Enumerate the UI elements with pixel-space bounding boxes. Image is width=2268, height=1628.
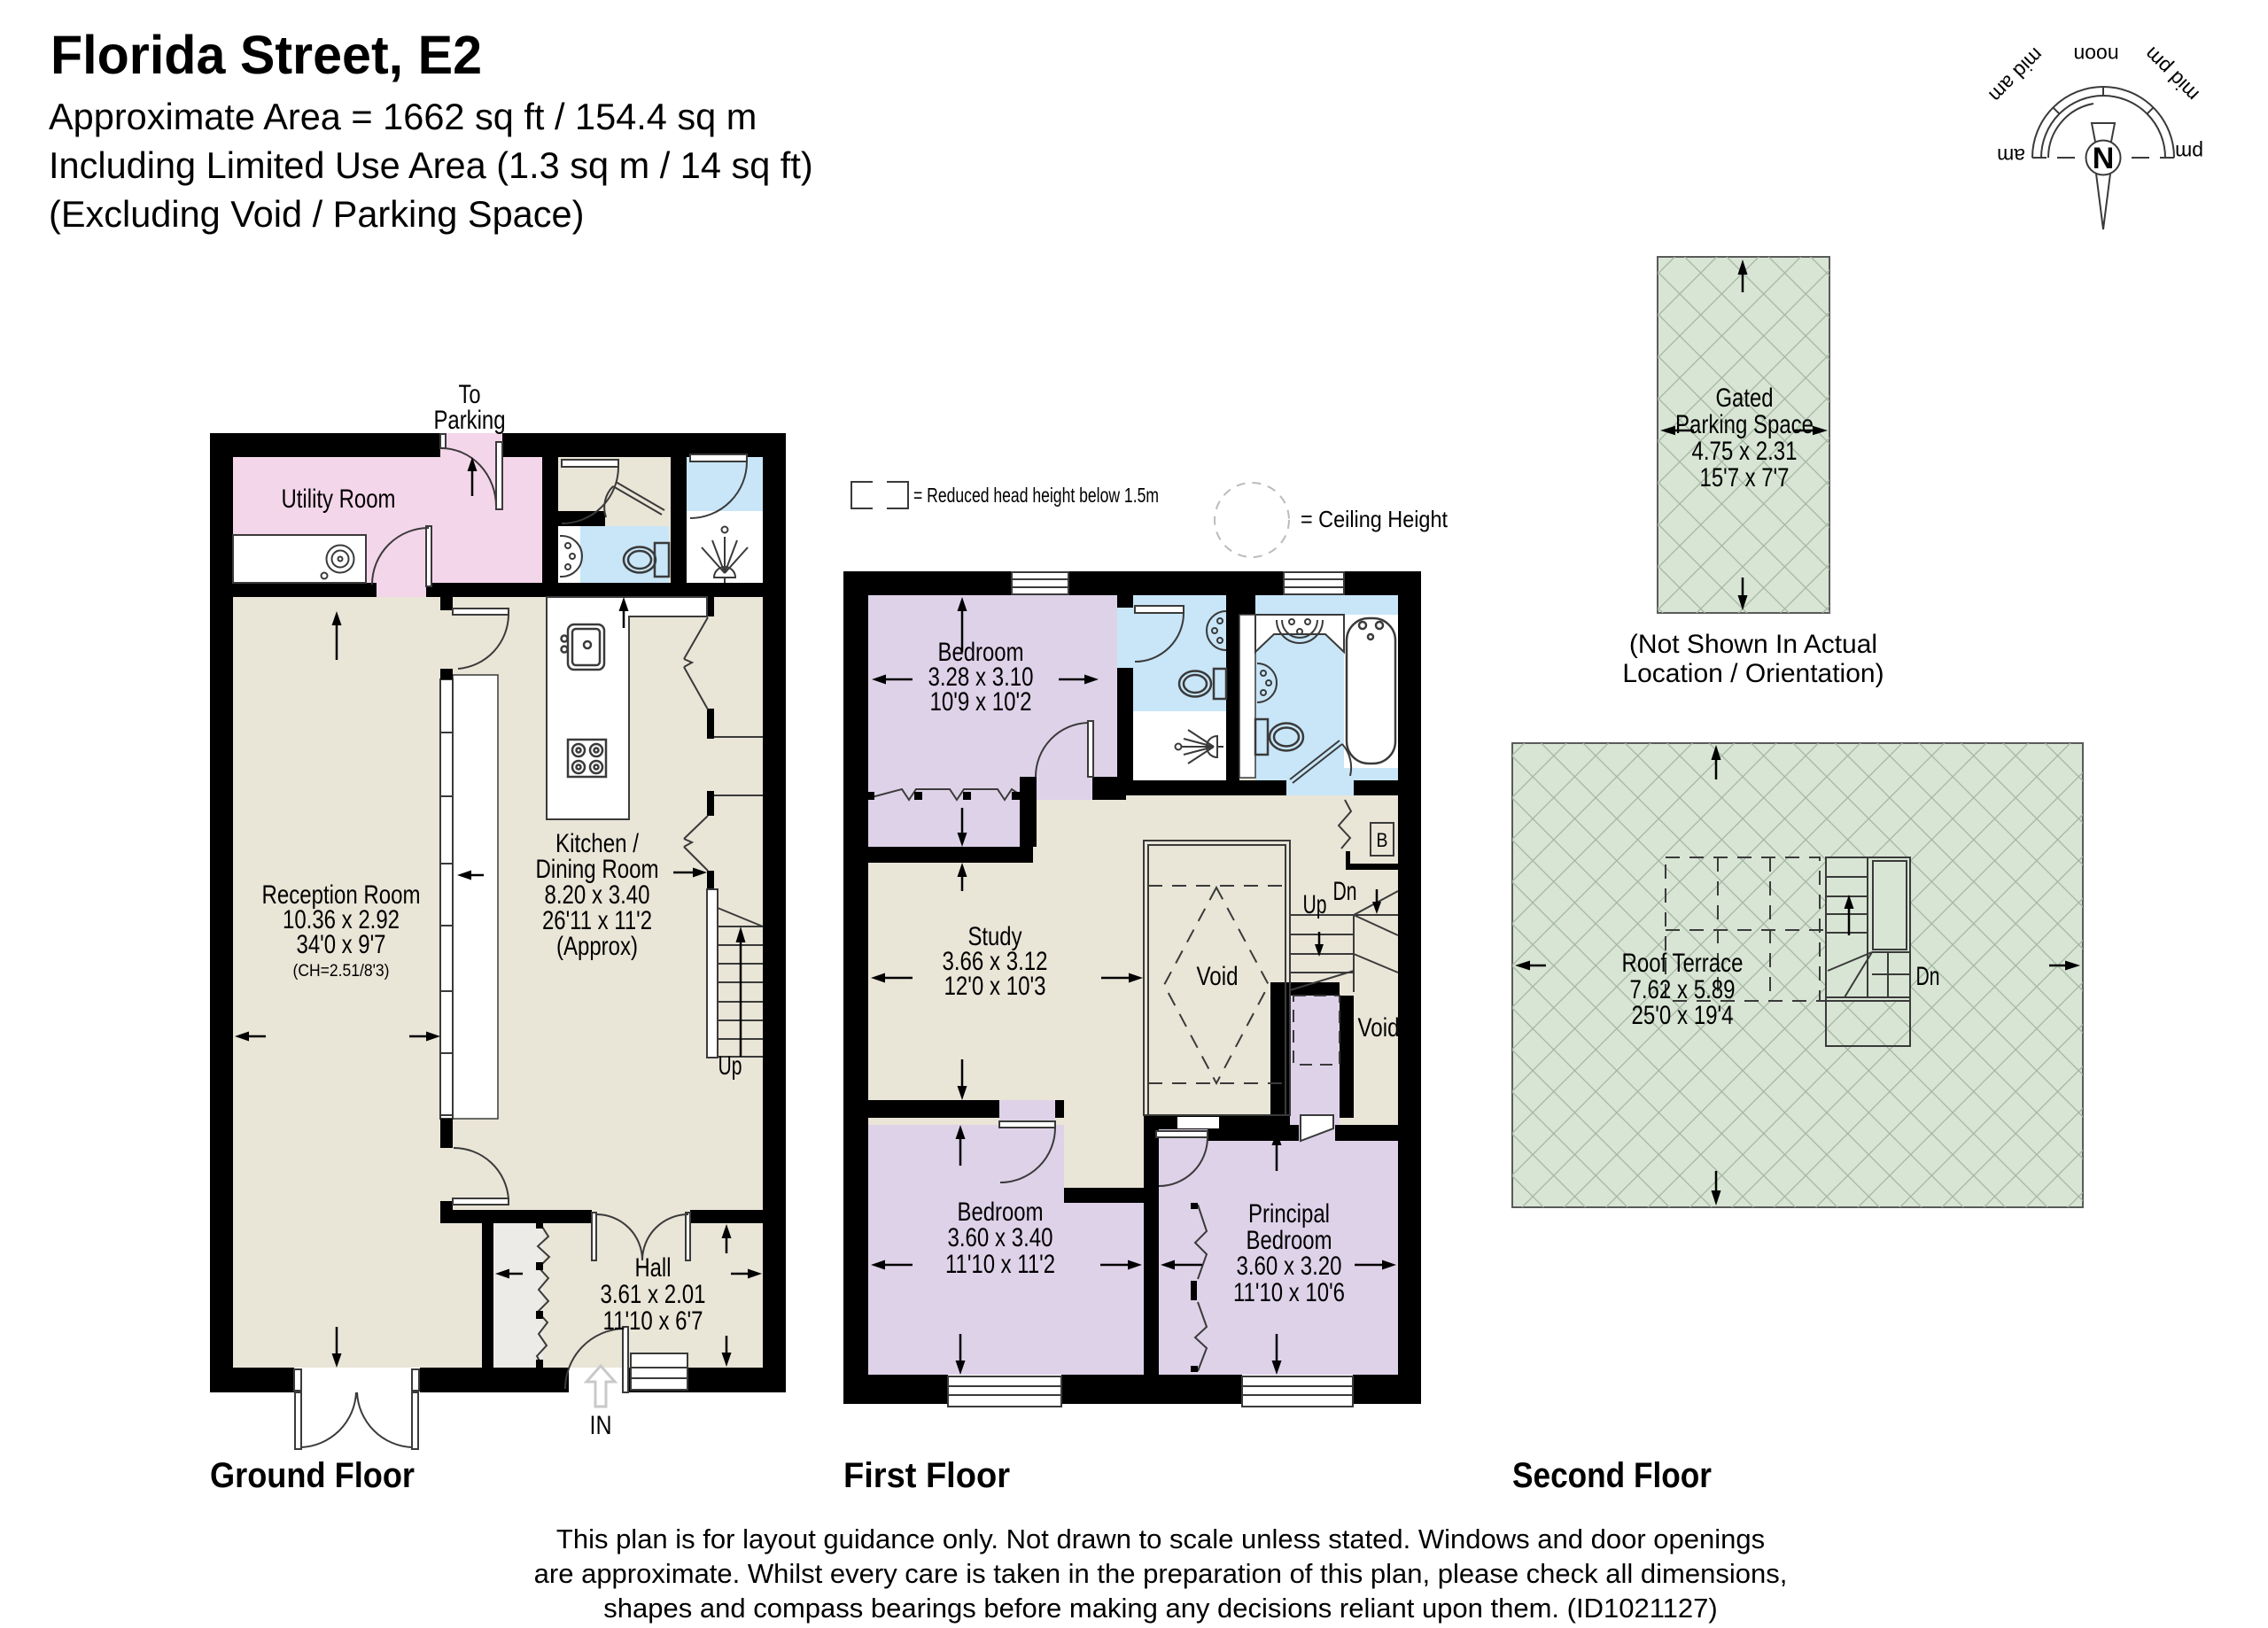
- svg-text:12'0 x 10'3: 12'0 x 10'3: [944, 972, 1046, 1001]
- svg-text:Void: Void: [1197, 962, 1239, 991]
- svg-text:10'9 x 10'2: 10'9 x 10'2: [930, 687, 1032, 717]
- svg-text:Principal: Principal: [1248, 1199, 1330, 1229]
- svg-text:Up: Up: [1303, 890, 1327, 919]
- svg-text:N: N: [2093, 142, 2115, 175]
- svg-text:= Ceiling Height: = Ceiling Height: [1301, 506, 1449, 532]
- svg-text:shapes and compass bearings be: shapes and compass bearings before makin…: [603, 1593, 1717, 1624]
- svg-text:25'0 x 19'4: 25'0 x 19'4: [1632, 1001, 1734, 1030]
- svg-text:3.61 x 2.01: 3.61 x 2.01: [601, 1280, 706, 1309]
- svg-text:3.60 x 3.20: 3.60 x 3.20: [1237, 1252, 1342, 1281]
- svg-text:Location / Orientation): Location / Orientation): [1622, 659, 1884, 688]
- svg-text:(Excluding Void / Parking Spac: (Excluding Void / Parking Space): [49, 193, 584, 235]
- svg-text:Roof Terrace: Roof Terrace: [1622, 949, 1744, 978]
- svg-text:am: am: [1997, 144, 2025, 167]
- svg-text:Parking: Parking: [434, 406, 506, 435]
- svg-text:Hall: Hall: [635, 1253, 672, 1283]
- svg-text:11'10 x 6'7: 11'10 x 6'7: [603, 1306, 703, 1336]
- svg-text:pm: pm: [2175, 141, 2203, 164]
- svg-text:Parking Space: Parking Space: [1675, 410, 1814, 439]
- svg-text:noon: noon: [2073, 43, 2118, 66]
- svg-text:Florida Street, E2: Florida Street, E2: [50, 25, 482, 85]
- svg-text:3.60 x 3.40: 3.60 x 3.40: [948, 1223, 1053, 1252]
- svg-text:Including Limited Use Area (1.: Including Limited Use Area (1.3 sq m / 1…: [49, 144, 813, 186]
- svg-text:This plan is for layout guidan: This plan is for layout guidance only. N…: [556, 1523, 1765, 1554]
- svg-text:Second Floor: Second Floor: [1512, 1456, 1712, 1495]
- svg-text:Gated: Gated: [1716, 384, 1774, 413]
- svg-text:(CH=2.51/8'3): (CH=2.51/8'3): [293, 962, 390, 981]
- svg-text:34'0 x 9'7: 34'0 x 9'7: [297, 930, 386, 959]
- svg-text:Approximate Area = 1662 sq ft: Approximate Area = 1662 sq ft / 154.4 sq…: [49, 96, 757, 137]
- svg-text:Dn: Dn: [1916, 962, 1940, 991]
- svg-text:First Floor: First Floor: [843, 1456, 1010, 1495]
- svg-text:IN: IN: [590, 1411, 612, 1440]
- svg-text:Dn: Dn: [1333, 877, 1357, 906]
- svg-text:Utility Room: Utility Room: [282, 485, 396, 514]
- svg-text:(Not Shown In Actual: (Not Shown In Actual: [1629, 630, 1877, 659]
- svg-text:11'10 x 11'2: 11'10 x 11'2: [945, 1250, 1055, 1279]
- svg-text:Void: Void: [1358, 1013, 1400, 1043]
- svg-text:= Reduced head height below 1.: = Reduced head height below 1.5m: [913, 484, 1159, 507]
- svg-text:Ground Floor: Ground Floor: [210, 1456, 415, 1495]
- svg-text:(Approx): (Approx): [556, 932, 638, 961]
- svg-text:Up: Up: [718, 1051, 742, 1081]
- svg-text:15'7 x 7'7: 15'7 x 7'7: [1700, 463, 1790, 492]
- svg-text:4.75 x 2.31: 4.75 x 2.31: [1692, 437, 1798, 466]
- svg-text:B: B: [1377, 829, 1388, 851]
- svg-text:are approximate. Whilst every: are approximate. Whilst every care is ta…: [534, 1558, 1788, 1589]
- svg-text:11'10 x 10'6: 11'10 x 10'6: [1233, 1278, 1345, 1307]
